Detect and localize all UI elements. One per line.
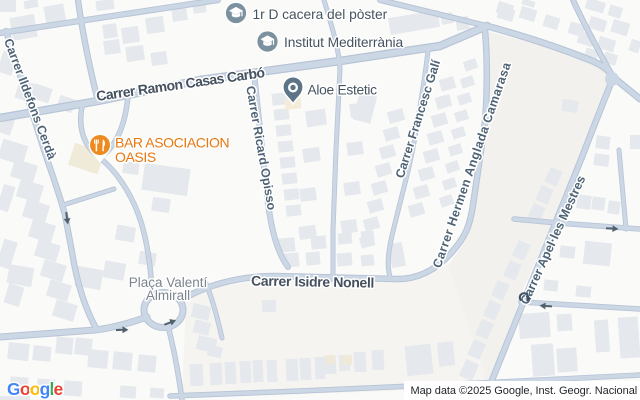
svg-text:Aloe Estetic: Aloe Estetic bbox=[308, 83, 378, 98]
svg-text:Carrer Isidre Nonell: Carrer Isidre Nonell bbox=[251, 273, 374, 291]
svg-text:OASIS: OASIS bbox=[115, 149, 156, 165]
svg-text:Google: Google bbox=[7, 379, 64, 399]
svg-text:Almirall: Almirall bbox=[146, 288, 190, 303]
svg-text:Institut Mediterrània: Institut Mediterrània bbox=[284, 35, 403, 50]
svg-text:Map data ©2025 Google, Inst. G: Map data ©2025 Google, Inst. Geogr. Naci… bbox=[411, 385, 638, 397]
svg-text:1r D cacera del pòster: 1r D cacera del pòster bbox=[253, 7, 388, 22]
